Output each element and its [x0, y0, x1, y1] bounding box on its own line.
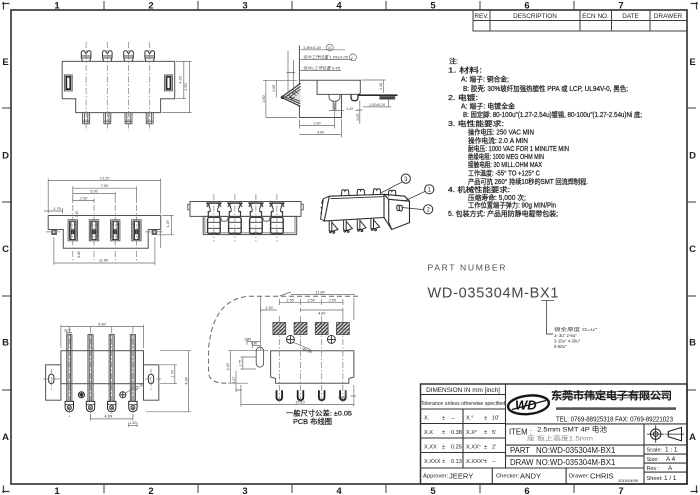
- svg-text:X.XX°: X.XX°: [466, 444, 481, 450]
- svg-text:WD-035304M-BX1: WD-035304M-BX1: [428, 286, 559, 302]
- svg-text:4.00: 4.00: [317, 131, 324, 135]
- svg-text:1: 1: [54, 486, 60, 495]
- svg-text:B: B: [689, 338, 696, 349]
- svg-text:X.X°: X.X°: [466, 430, 477, 436]
- svg-text:CHRIS: CHRIS: [590, 472, 614, 481]
- svg-text:±: ±: [442, 459, 445, 465]
- svg-text:±: ±: [442, 430, 445, 436]
- svg-text:10': 10': [492, 416, 499, 422]
- svg-text:TEL: 0769-88925318 FAX: 0769-: TEL: 0769-88925318 FAX: 0769-89221023: [556, 414, 673, 423]
- svg-text:0.65: 0.65: [356, 114, 360, 121]
- svg-text:ECN NO.: ECN NO.: [582, 13, 609, 20]
- svg-text:1.70: 1.70: [171, 369, 175, 377]
- svg-text:DESCRIPTION: DESCRIPTION: [513, 13, 557, 20]
- svg-text:4: 4: [336, 486, 342, 495]
- svg-text:耐电压: 1000 VAC FOR 1 MINUTE MIN: 耐电压: 1000 VAC FOR 1 MINUTE MIN: [468, 144, 569, 153]
- svg-text:5: 5: [430, 486, 436, 495]
- svg-text:1.45: 1.45: [166, 221, 170, 228]
- svg-text:1.20: 1.20: [346, 107, 353, 111]
- svg-text:--: --: [451, 416, 455, 422]
- svg-text:A: 端子: 电镀全金: A: 端子: 电镀全金: [461, 102, 515, 111]
- svg-text:2015/04/08: 2015/04/08: [617, 478, 639, 483]
- svg-text:3-15u" 4-30u": 3-15u" 4-30u": [554, 339, 581, 344]
- svg-text:8.80: 8.80: [98, 323, 106, 327]
- svg-text:A 4: A 4: [666, 456, 676, 463]
- svg-text:Approver:: Approver:: [423, 474, 449, 480]
- svg-text:2.50: 2.50: [328, 299, 337, 303]
- svg-text:7: 7: [618, 486, 623, 495]
- svg-text:X.: X.: [424, 416, 430, 422]
- svg-text:2.5mm SMT 4P 电池: 2.5mm SMT 4P 电池: [537, 425, 607, 434]
- svg-text:PART: PART: [510, 446, 530, 455]
- svg-text:3.40: 3.40: [314, 122, 321, 126]
- svg-text:2.50: 2.50: [306, 299, 315, 303]
- svg-text:压缩寿命: 5,000 次;: 压缩寿命: 5,000 次;: [468, 193, 526, 202]
- svg-text:5-50u": 5-50u": [554, 344, 567, 349]
- svg-text:±: ±: [484, 459, 487, 465]
- svg-text:ITEM :: ITEM :: [509, 428, 532, 437]
- svg-text:A: A: [689, 432, 696, 443]
- svg-text:11.80: 11.80: [315, 291, 325, 295]
- svg-text:±: ±: [442, 416, 445, 422]
- svg-text:E: E: [689, 57, 695, 68]
- svg-text:接触电阻: 30 MILL.OHM MAX: 接触电阻: 30 MILL.OHM MAX: [468, 160, 542, 169]
- svg-text:1.50: 1.50: [265, 306, 273, 310]
- svg-text:东莞市伟定电子有限公司: 东莞市伟定电子有限公司: [551, 389, 672, 402]
- svg-text:±: ±: [484, 430, 487, 436]
- svg-text:工作温度: -55° TO +125° C: 工作温度: -55° TO +125° C: [468, 169, 540, 178]
- svg-text:PART NUMBER: PART NUMBER: [428, 263, 508, 273]
- svg-text:4.50: 4.50: [184, 83, 188, 90]
- svg-text:0.38: 0.38: [451, 430, 462, 436]
- svg-text:1- 3u" 2-6u": 1- 3u" 2-6u": [554, 333, 577, 338]
- svg-text:11.80: 11.80: [99, 259, 109, 263]
- svg-text:REV.: REV.: [474, 13, 489, 20]
- svg-text:WD: WD: [515, 398, 537, 413]
- svg-text:±: ±: [484, 444, 487, 450]
- svg-text:4.30: 4.30: [226, 364, 230, 371]
- svg-text:DATE: DATE: [622, 13, 639, 20]
- svg-text:PCB 布线图: PCB 布线图: [293, 417, 332, 426]
- svg-text:操作电流: 2.0 A MIN: 操作电流: 2.0 A MIN: [468, 136, 528, 145]
- svg-text:0.13: 0.13: [451, 459, 462, 465]
- svg-text:A: A: [2, 432, 9, 443]
- svg-text:4.80: 4.80: [318, 312, 326, 316]
- svg-text:1.02±0.20: 1.02±0.20: [369, 103, 385, 107]
- svg-text:B: B: [2, 338, 9, 349]
- svg-text:Checker:: Checker:: [496, 474, 520, 480]
- svg-text:A: A: [668, 465, 673, 472]
- svg-text:4.30: 4.30: [179, 76, 183, 83]
- svg-text:4: 4: [336, 1, 342, 12]
- svg-text:7.50: 7.50: [101, 184, 109, 188]
- svg-text:5: 5: [430, 1, 436, 12]
- svg-text:0.1±0.10: 0.1±0.10: [380, 96, 393, 100]
- svg-text:2.50: 2.50: [79, 197, 88, 201]
- svg-text:E: E: [2, 57, 8, 68]
- svg-text:绝缘电阻: 1000 MEG OHM MIN: 绝缘电阻: 1000 MEG OHM MIN: [468, 152, 544, 161]
- svg-text:Size:: Size:: [647, 457, 660, 463]
- svg-text:0.80: 0.80: [251, 342, 257, 346]
- svg-text:5.00: 5.00: [90, 190, 98, 194]
- svg-text:±: ±: [442, 444, 445, 450]
- svg-text:1: 1: [54, 1, 60, 12]
- svg-text:X.XXX: X.XXX: [424, 459, 441, 465]
- svg-text:1.75: 1.75: [239, 360, 243, 366]
- svg-text:8.80: 8.80: [77, 251, 81, 258]
- svg-text:1.47: 1.47: [232, 377, 236, 383]
- svg-text:1 : 1: 1 : 1: [665, 447, 678, 454]
- svg-text:6: 6: [524, 486, 529, 495]
- svg-text:工作位置端子弹力: 90g MIN/Pin: 工作位置端子弹力: 90g MIN/Pin: [468, 201, 556, 210]
- svg-text:产品可抗 260° 持续10秒的SMT 回流焊制程.: 产品可抗 260° 持续10秒的SMT 回流焊制程.: [468, 177, 588, 186]
- svg-text:D: D: [689, 151, 696, 162]
- svg-text:1 / 1: 1 / 1: [664, 475, 677, 482]
- svg-text:X.X: X.X: [424, 430, 433, 436]
- svg-text:1.40: 1.40: [130, 421, 137, 425]
- svg-text:1.80±0.20: 1.80±0.20: [303, 45, 322, 50]
- svg-text:X.XX: X.XX: [424, 444, 437, 450]
- svg-text:2.50: 2.50: [285, 299, 294, 303]
- svg-text:1.95: 1.95: [272, 85, 276, 92]
- svg-text:NO:WD-035304M-BX1: NO:WD-035304M-BX1: [536, 446, 615, 455]
- svg-text:DIMENSION IN mm [inch]: DIMENSION IN mm [inch]: [426, 387, 500, 394]
- svg-text:3: 3: [242, 1, 247, 12]
- svg-text:X.XXX°: X.XXX°: [466, 459, 485, 465]
- svg-text:2. 电镀:: 2. 电镀:: [448, 93, 478, 102]
- svg-text:3. 电性能要求:: 3. 电性能要求:: [448, 119, 504, 128]
- svg-text:C: C: [2, 244, 9, 255]
- svg-text:注:: 注:: [449, 57, 458, 66]
- svg-text:B: 胶壳: 30%玻纤加强热塑性 PPA 或 LCP, U: B: 胶壳: 30%玻纤加强热塑性 PPA 或 LCP, UL94V-0, 黑色…: [463, 84, 628, 93]
- svg-text:舌片≥工作位置 0.45: 舌片≥工作位置 0.45: [303, 65, 341, 70]
- svg-text:--: --: [492, 459, 496, 465]
- svg-text:操作电压: 250 VAC MIN: 操作电压: 250 VAC MIN: [468, 128, 534, 137]
- svg-text:镀金厚度 G=u": 镀金厚度 G=u": [554, 326, 598, 333]
- svg-text:0.85: 0.85: [338, 396, 344, 400]
- svg-text:2: 2: [148, 1, 153, 12]
- svg-text:1.40: 1.40: [75, 211, 79, 218]
- svg-text:DRAWER: DRAWER: [654, 13, 683, 20]
- svg-text:4. 机械性能要求:: 4. 机械性能要求:: [448, 185, 510, 194]
- svg-text:ANDY: ANDY: [520, 472, 541, 481]
- svg-text:3.60: 3.60: [262, 96, 266, 103]
- svg-text:C: C: [689, 244, 696, 255]
- svg-text:JEERY: JEERY: [449, 472, 473, 481]
- svg-text:Tolerance unless otherwise spe: Tolerance unless otherwise specified: [421, 401, 506, 407]
- svg-text:±: ±: [484, 416, 487, 422]
- svg-text:DRAW: DRAW: [510, 458, 534, 467]
- svg-text:D: D: [2, 151, 9, 162]
- svg-text:Rev :: Rev :: [647, 466, 661, 472]
- svg-text:1. 材料:: 1. 材料:: [448, 66, 482, 75]
- svg-text:0.25: 0.25: [451, 444, 462, 450]
- svg-text:Sheet:: Sheet:: [647, 476, 664, 482]
- svg-text:A: 端子: 铜合金;: A: 端子: 铜合金;: [461, 75, 509, 84]
- svg-text:X.°: X.°: [466, 416, 474, 422]
- svg-text:Drawer:: Drawer:: [569, 474, 590, 480]
- svg-text:4.80: 4.80: [104, 415, 112, 419]
- svg-text:5': 5': [492, 430, 496, 436]
- svg-text:13.20: 13.20: [100, 176, 110, 180]
- svg-text:2: 2: [148, 486, 153, 495]
- svg-text:L: L: [351, 55, 353, 60]
- svg-text:G: G: [328, 45, 331, 50]
- svg-text:NO:WD-035304M-BX1: NO:WD-035304M-BX1: [536, 458, 615, 467]
- svg-text:1.40: 1.40: [379, 83, 383, 90]
- svg-text:1.70: 1.70: [53, 207, 61, 211]
- svg-text:5. 包装方式: 产品用防静电载带包装;: 5. 包装方式: 产品用防静电载带包装;: [448, 209, 558, 218]
- svg-text:0.70: 0.70: [64, 328, 71, 332]
- svg-text:3: 3: [242, 486, 247, 495]
- svg-text:1.40: 1.40: [244, 338, 251, 342]
- svg-text:B: 固定脚: 80-100u"(1.27-2.54u)镀锡: B: 固定脚: 80-100u"(1.27-2.54u)镀锡, 80-100u"…: [463, 110, 642, 119]
- svg-text:15.10: 15.10: [295, 400, 305, 404]
- svg-text:4.30: 4.30: [184, 376, 188, 384]
- svg-text:Scale:: Scale:: [647, 448, 663, 454]
- svg-text:座 板上高度1.5mm: 座 板上高度1.5mm: [527, 434, 593, 442]
- svg-text:舌片工作位置 1.05±0.05: 舌片工作位置 1.05±0.05: [303, 55, 349, 60]
- svg-text:2': 2': [492, 444, 496, 450]
